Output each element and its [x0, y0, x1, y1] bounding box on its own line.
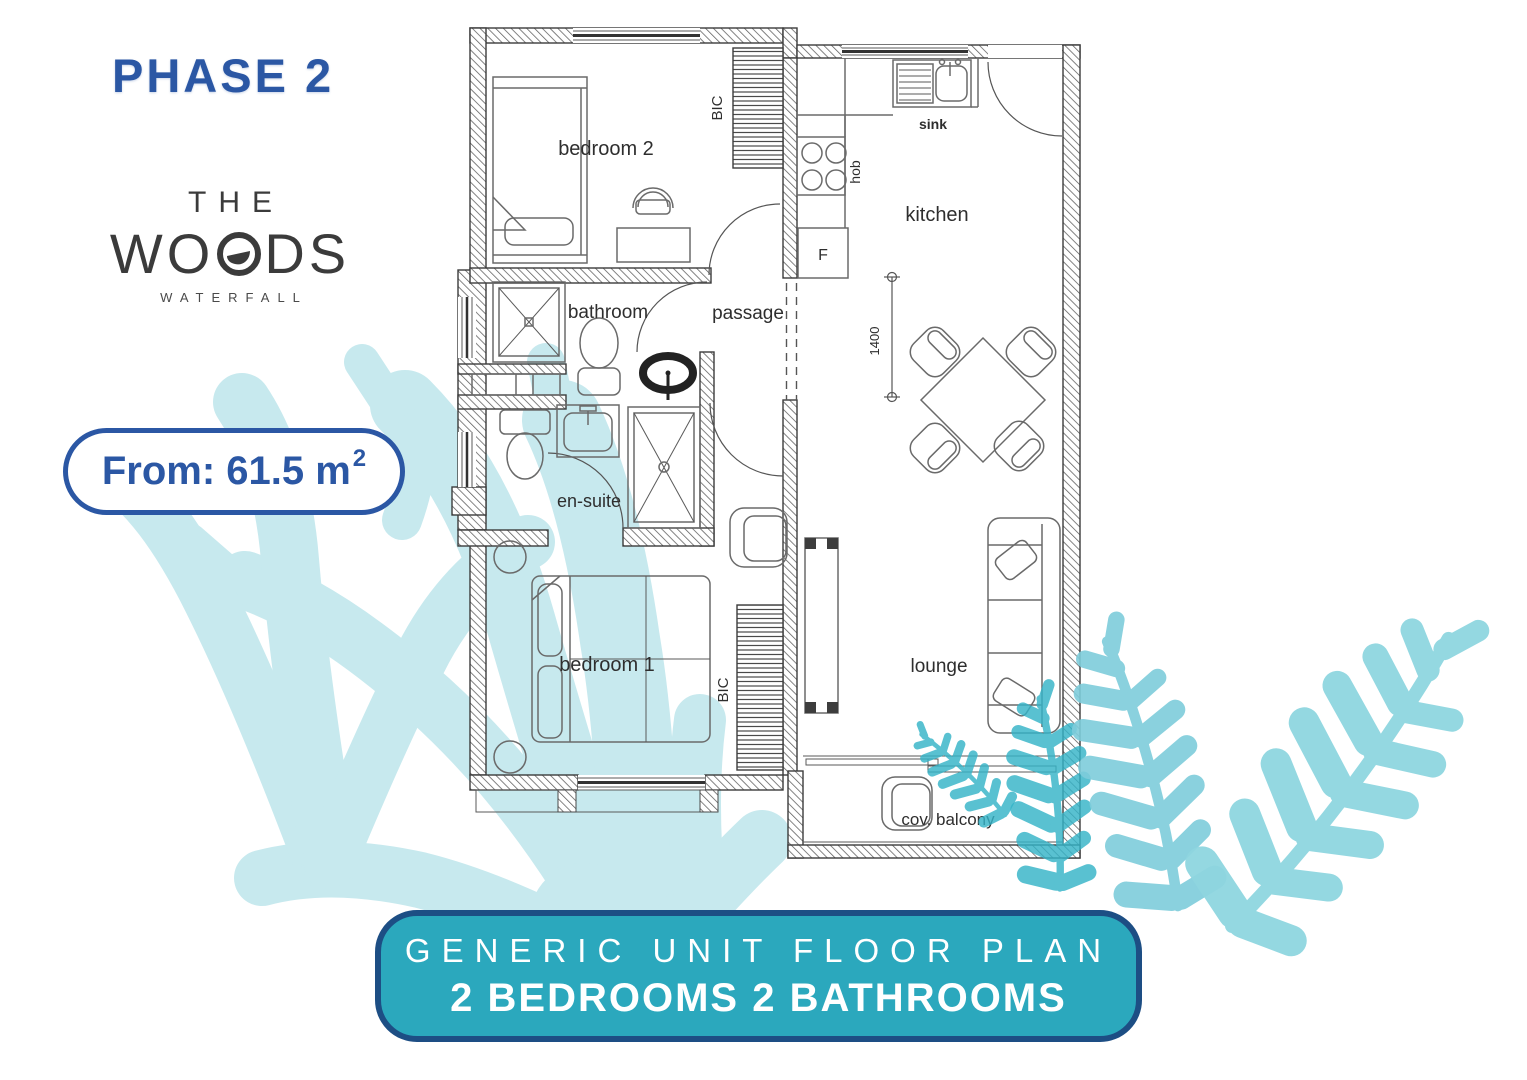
bic-cupboard-bedroom1: [737, 605, 783, 770]
logo-the: THE: [60, 186, 400, 220]
label-bic-top: BIC: [709, 95, 726, 120]
ensuite-shower: [628, 407, 700, 528]
label-sink: sink: [919, 116, 947, 132]
ensuite-toilet: [500, 410, 550, 479]
label-kitchen: kitchen: [905, 204, 968, 226]
label-ensuite: en-suite: [557, 491, 621, 511]
logo-woods-start: WO: [110, 224, 214, 284]
passage-opening: [787, 283, 797, 400]
waterfall-o-icon: [216, 231, 262, 277]
label-dim-1400: 1400: [867, 327, 882, 356]
lounge-armchair: [730, 508, 787, 567]
logo-waterfall: WATERFALL: [60, 290, 400, 305]
bic-cupboard-bedroom2: [733, 48, 783, 168]
kitchen-sink: [893, 60, 971, 108]
bathroom-toilet: [578, 318, 620, 395]
door-arcs: [548, 62, 1062, 528]
bedroom1-sill: [476, 790, 718, 812]
kitchen-hob: [797, 137, 846, 195]
label-bic-bottom: BIC: [715, 677, 732, 702]
bedroom2-chair: [633, 188, 673, 214]
banner-subtitle: 2 BEDROOMS 2 BATHROOMS: [450, 976, 1067, 1021]
lounge-sofa: [988, 518, 1060, 733]
label-bedroom1: bedroom 1: [559, 654, 655, 676]
area-pill-sup: 2: [353, 445, 366, 473]
label-hob: hob: [847, 160, 863, 184]
logo-woods: WO DS: [60, 224, 400, 284]
logo-woods-end: DS: [264, 224, 350, 284]
label-balcony: cov. balcony: [901, 810, 995, 829]
label-lounge: lounge: [910, 656, 967, 677]
kitchen-counter: [797, 58, 978, 228]
area-pill: From: 61.5 m 2: [63, 428, 405, 515]
brand-logo: THE WO DS WATERFALL: [60, 186, 400, 305]
label-bedroom2: bedroom 2: [558, 138, 654, 160]
area-pill-text: From: 61.5 m: [102, 449, 351, 494]
flyer-page: PHASE 2 THE WO DS WATERFALL From: 61.5 m…: [0, 0, 1527, 1080]
label-passage: passage: [712, 303, 784, 324]
banner-title: GENERIC UNIT FLOOR PLAN: [405, 932, 1112, 970]
ensuite-basin: [557, 405, 619, 457]
floor-plan: bedroom 2 BIC sink hob F kitchen bathroo…: [450, 10, 1110, 870]
label-bathroom: bathroom: [568, 302, 648, 323]
fern-light: [1178, 581, 1517, 964]
dimension-1400: [884, 273, 900, 402]
bedroom2-bed: [493, 77, 587, 263]
phase-title: PHASE 2: [112, 48, 334, 103]
lounge-tv-unit: [805, 538, 838, 713]
dining-table: [905, 322, 1060, 477]
bathroom-shower: [493, 282, 565, 362]
bathroom-basin: [643, 356, 693, 400]
label-fridge: F: [818, 247, 828, 264]
bedroom2-desk: [617, 228, 690, 262]
banner: GENERIC UNIT FLOOR PLAN 2 BEDROOMS 2 BAT…: [375, 910, 1142, 1042]
